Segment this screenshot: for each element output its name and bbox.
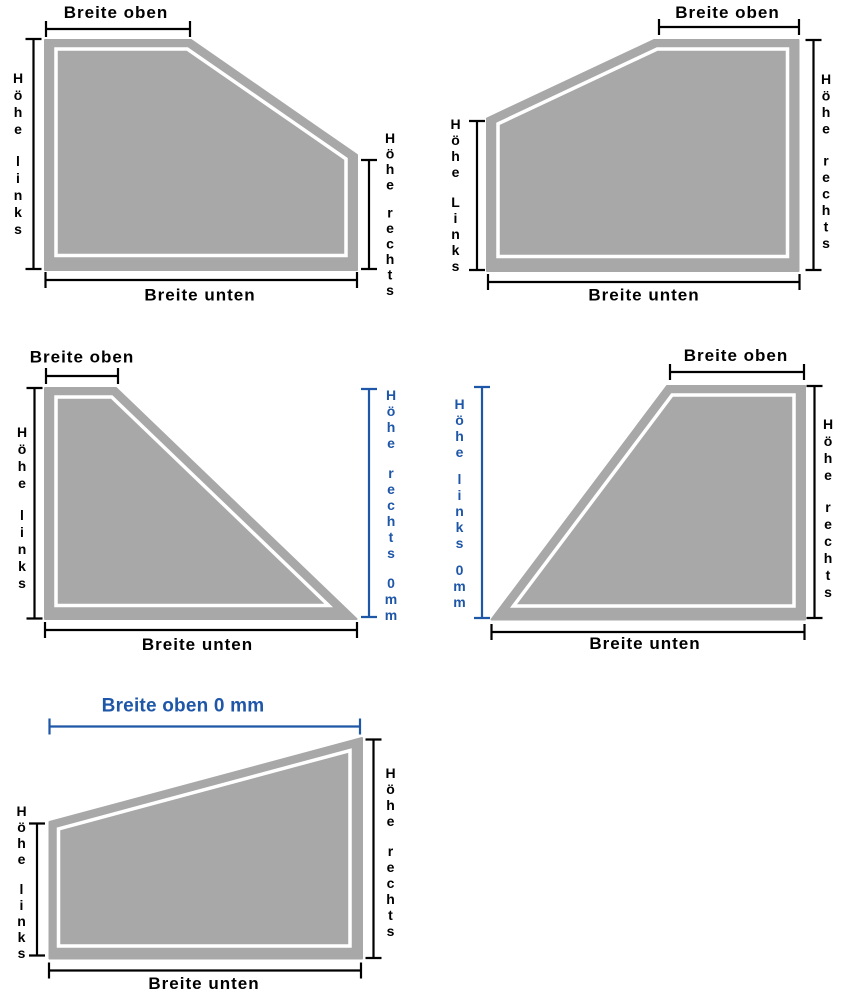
svg-text:Breite unten: Breite unten (148, 974, 259, 993)
svg-text:Breite oben 0 mm: Breite oben 0 mm (102, 696, 265, 717)
svg-text:Breite unten: Breite unten (589, 634, 700, 653)
svg-text:Breite oben: Breite oben (64, 3, 169, 22)
svg-text:Breite unten: Breite unten (144, 286, 255, 305)
svg-text:Breite unten: Breite unten (142, 635, 253, 654)
svg-text:Breite unten: Breite unten (588, 286, 699, 305)
svg-text:HöheLinks: HöheLinks (450, 116, 460, 274)
svg-text:Breite oben: Breite oben (30, 348, 135, 367)
svg-text:Breite oben: Breite oben (684, 346, 789, 365)
svg-text:Breite oben: Breite oben (675, 3, 780, 22)
